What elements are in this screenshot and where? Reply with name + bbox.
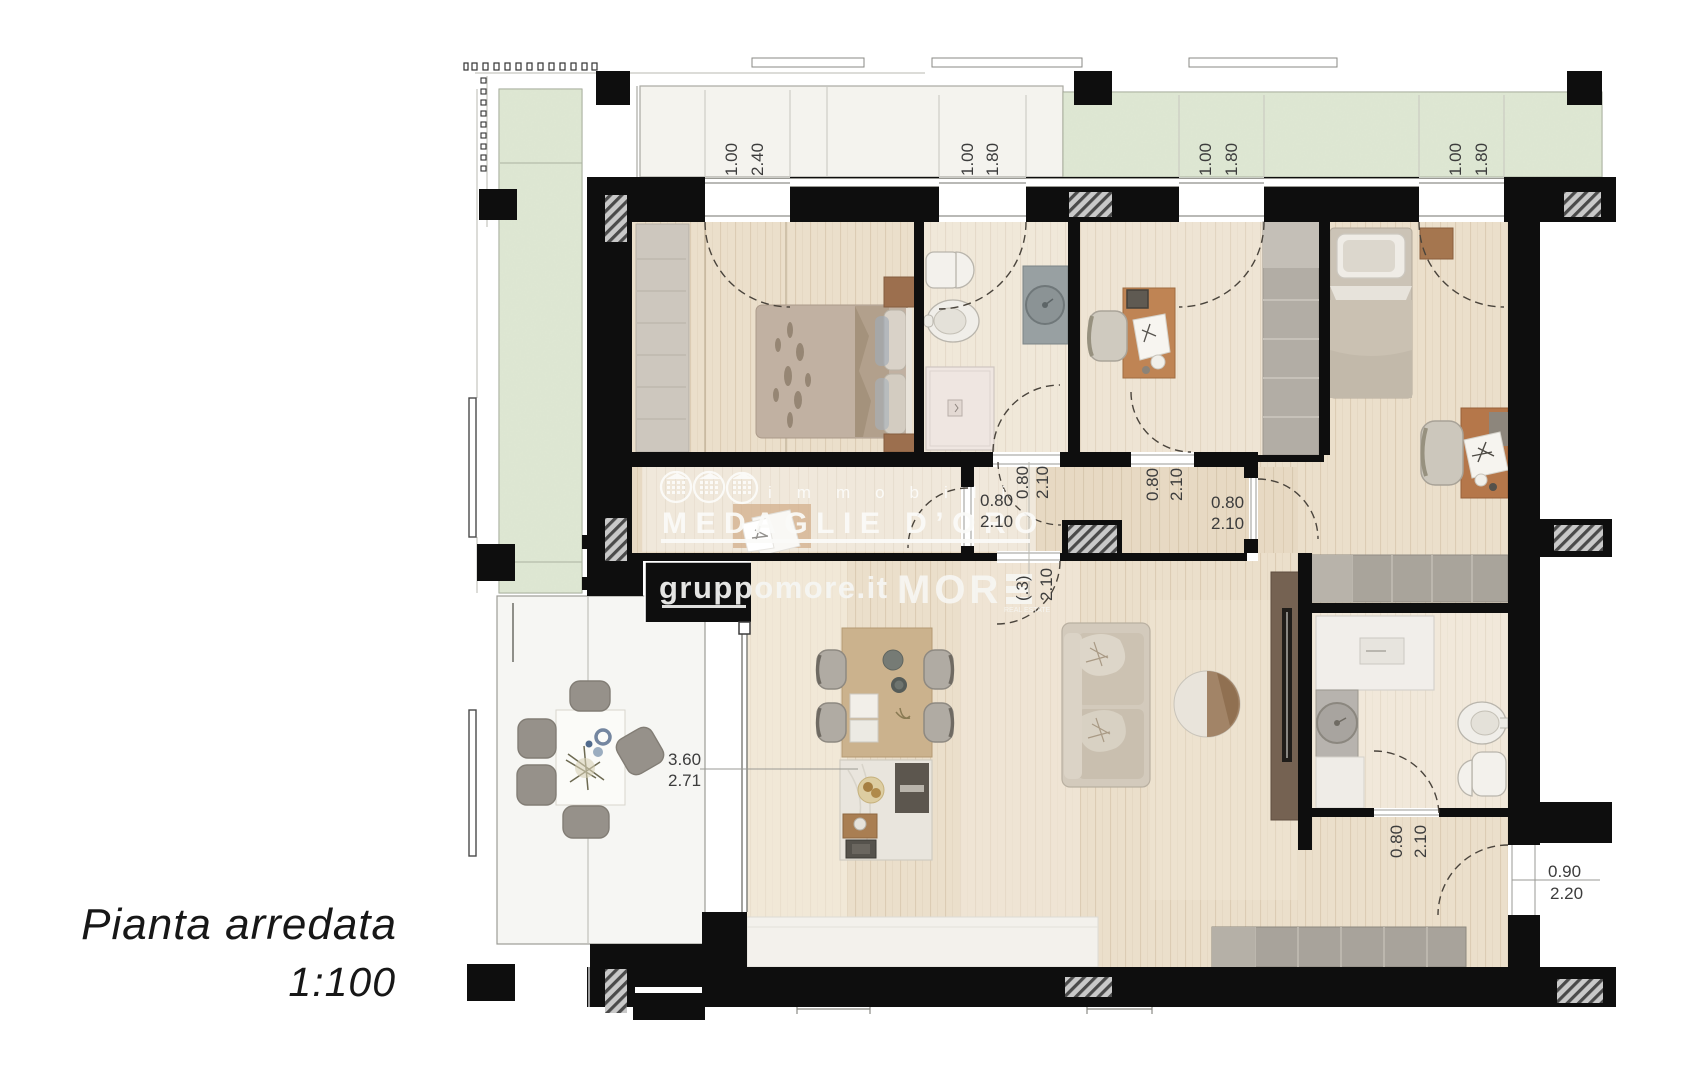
- svg-text:(.3): (.3): [1013, 576, 1032, 602]
- svg-text:2.10: 2.10: [1167, 468, 1186, 501]
- svg-text:REAL ESTATE: REAL ESTATE: [1004, 607, 1050, 614]
- svg-text:2.20: 2.20: [1550, 884, 1583, 903]
- svg-text:0.80: 0.80: [1211, 493, 1244, 512]
- svg-text:0.80: 0.80: [980, 491, 1013, 510]
- svg-text:0.90: 0.90: [1548, 862, 1581, 881]
- svg-text:2.10: 2.10: [1037, 568, 1056, 601]
- svg-text:2.10: 2.10: [1411, 825, 1430, 858]
- svg-text:1.80: 1.80: [983, 143, 1002, 176]
- svg-text:gruppomore.it: gruppomore.it: [659, 570, 889, 605]
- svg-text:1.00: 1.00: [722, 143, 741, 176]
- svg-text:1:100: 1:100: [288, 959, 396, 1005]
- svg-text:3.60: 3.60: [668, 750, 701, 769]
- svg-text:1.80: 1.80: [1222, 143, 1241, 176]
- svg-text:1.00: 1.00: [1446, 143, 1465, 176]
- svg-text:2.40: 2.40: [748, 143, 767, 176]
- svg-text:0.80: 0.80: [1143, 468, 1162, 501]
- svg-text:2.10: 2.10: [980, 512, 1013, 531]
- svg-text:0.80: 0.80: [1387, 825, 1406, 858]
- svg-text:1.00: 1.00: [1196, 143, 1215, 176]
- svg-text:2.10: 2.10: [1033, 466, 1052, 499]
- svg-text:1.80: 1.80: [1472, 143, 1491, 176]
- svg-text:0.80: 0.80: [1013, 466, 1032, 499]
- svg-text:Pianta arredata: Pianta arredata: [81, 900, 397, 949]
- svg-text:2.71: 2.71: [668, 771, 701, 790]
- svg-text:MOR: MOR: [897, 568, 1002, 612]
- svg-text:2.10: 2.10: [1211, 514, 1244, 533]
- svg-text:1.00: 1.00: [958, 143, 977, 176]
